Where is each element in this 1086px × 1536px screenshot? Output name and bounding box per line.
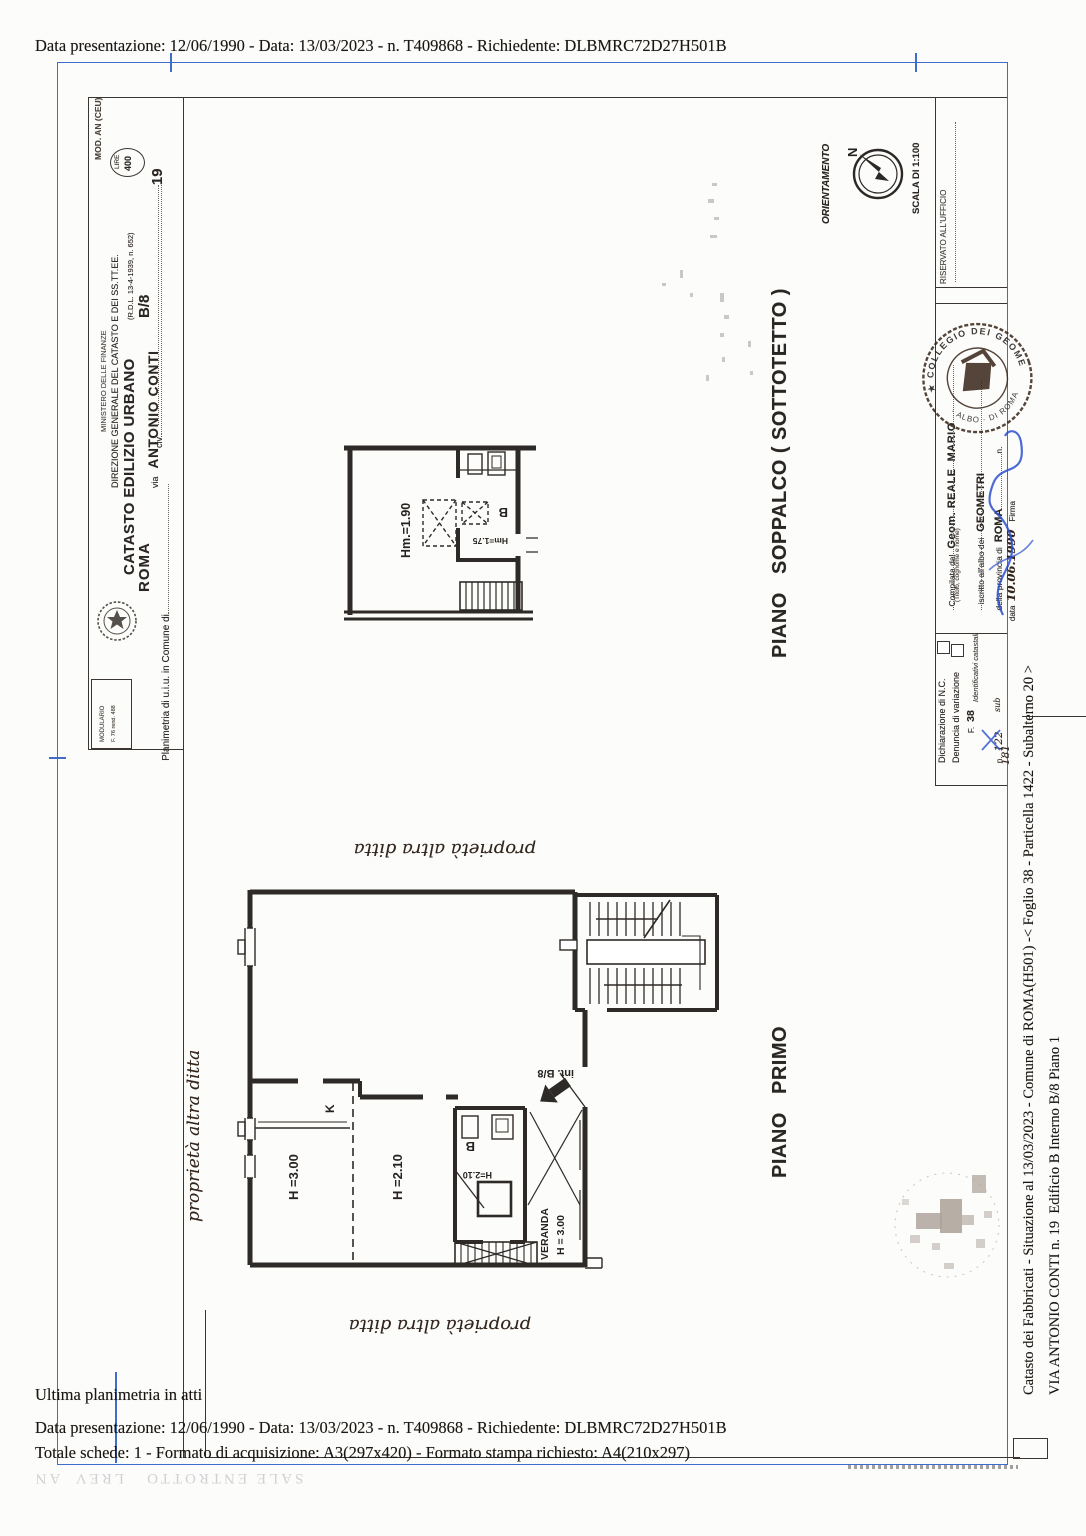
f-label: F. (967, 727, 976, 733)
handwriting-left: proprietà altra ditta (186, 1050, 203, 1222)
compass: N (845, 141, 909, 205)
form-top-line (88, 97, 1007, 98)
blue-tick-top-left (170, 53, 172, 72)
civ-label: civ. (154, 435, 164, 448)
checkbox-denuncia (951, 644, 964, 657)
blue-tick-top-right (915, 53, 917, 72)
footer-line3: Totale schede: 1 - Formato di acquisizio… (35, 1443, 690, 1463)
form-header-left-line (88, 97, 89, 750)
blue-tick-left (49, 757, 66, 759)
primo-veranda-label: VERANDA (539, 1208, 551, 1260)
comune-value: ROMA (137, 542, 152, 592)
riservato-label: RISERVATO ALL'UFFICIO (940, 190, 948, 284)
modulario-line1: MODULARIO (100, 706, 106, 742)
margin-caption-line2: VIA ANTONIO CONTI n. 19 Edificio B Inter… (1048, 1036, 1063, 1395)
piano-primo-title: PIANO PRIMO (770, 1026, 790, 1178)
direzione-label: DIREZIONE GENERALE DEL CATASTO E DEI SS.… (111, 254, 120, 488)
planimetria-label-line: Planimetria di u.i.u. in Comune di (152, 484, 182, 772)
via-label: via (150, 476, 160, 488)
blue-correction-cross (980, 728, 1002, 752)
orientamento-label: ORIENTAMENTO (822, 144, 832, 224)
soppalco-hm190-label: Hm.=1.90 (399, 503, 413, 558)
compass-north: N (845, 148, 860, 157)
leader-dots (162, 484, 169, 614)
primo-k-label: K (323, 1104, 337, 1113)
lire-value: 400 (124, 156, 133, 171)
form-corner-box (1013, 1438, 1048, 1459)
form-header-divider (183, 97, 184, 1458)
footer-line2: Data presentazione: 12/06/1990 - Data: 1… (35, 1418, 727, 1438)
leader-vdots-1 (158, 185, 159, 425)
compilata-line: Compilata dalGeom. REALE MARIO (938, 422, 966, 616)
lire-label: LIRE (115, 155, 122, 169)
handwriting-top: proprietà altra ditta (300, 840, 590, 858)
modulario-line2: F. 76 rend. 488 (112, 705, 118, 742)
primo-veranda-h-label: H = 3.00 (555, 1215, 567, 1255)
signature (975, 420, 1065, 630)
handwriting-bottom: proprietà altra ditta (295, 1316, 585, 1334)
dichiarazione-label: Dichiarazione di N.C. (938, 678, 947, 763)
soppalco-b-label: B (499, 505, 508, 520)
faint-pencil-marks (650, 165, 780, 395)
soppalco-hm175-label: Hm=1.75 (473, 536, 508, 546)
footer-line1: Ultima planimetria in atti (35, 1385, 202, 1405)
primo-h300-label: H =3.00 (286, 1154, 301, 1200)
primo-h210-label: H =2.10 (390, 1154, 405, 1200)
civ-value: 19 (149, 168, 166, 185)
primo-int-b8-label: int. B/8 (537, 1067, 574, 1079)
scala-label: SCALA DI 1:100 (912, 143, 922, 214)
planimetria-label: Planimetria di u.i.u. in Comune di (161, 614, 172, 761)
geometri-box-top (935, 303, 1007, 304)
rdl-note: (R.D.L. 13-4-1939, n. 652) (127, 232, 135, 320)
footer-bleedthrough-text: SALE ENTROTTO LREV AN (18, 1470, 318, 1485)
form-mod-label: MOD. AN (CEU) (94, 98, 103, 160)
geometri-round-stamp: ★ COLLEGIO DEI GEOMETRI ★ · ALBO · DI RO… (912, 314, 1044, 446)
titolo-note: (Titolo, cognome e nome) (955, 528, 962, 602)
identificativi-label: Identificativi catastali (972, 633, 980, 702)
margin-caption-line1: Catasto dei Fabbricati - Situazione al 1… (1022, 665, 1037, 1395)
scanned-cadastral-plan-page: Data presentazione: 12/06/1990 - Data: 1… (0, 0, 1086, 1536)
f-value: 38 (965, 710, 977, 722)
faint-stamp (880, 1155, 1015, 1295)
declaration-box-bottom (935, 785, 1007, 786)
sub-label-handwritten: sub (994, 698, 1002, 712)
sub-value: 181 (1001, 745, 1012, 765)
top-header-line: Data presentazione: 12/06/1990 - Data: 1… (35, 36, 727, 56)
state-emblem (95, 598, 139, 644)
catasto-title: CATASTO EDILIZIO URBANO (122, 358, 137, 575)
primo-b-label: B (466, 1139, 475, 1154)
floorplan-piano-primo: K H =3.00 H =2.10 B H=2.10 VERANDA H = 3… (230, 870, 740, 1290)
tiny-print-artifact (848, 1465, 1018, 1469)
checkbox-dichiarazione (937, 641, 950, 654)
primo-bh-label: H=2.10 (463, 1170, 492, 1180)
floorplan-soppalco: Hm.=1.90 B Hm=1.75 (340, 430, 555, 640)
riservato-divider (935, 287, 1007, 288)
piano-soppalco-title: PIANO SOPPALCO ( SOTTOTETTO ) (770, 288, 790, 658)
ministero-label: MINISTERO DELLE FINANZE (100, 330, 108, 432)
riservato-dots (955, 122, 956, 282)
